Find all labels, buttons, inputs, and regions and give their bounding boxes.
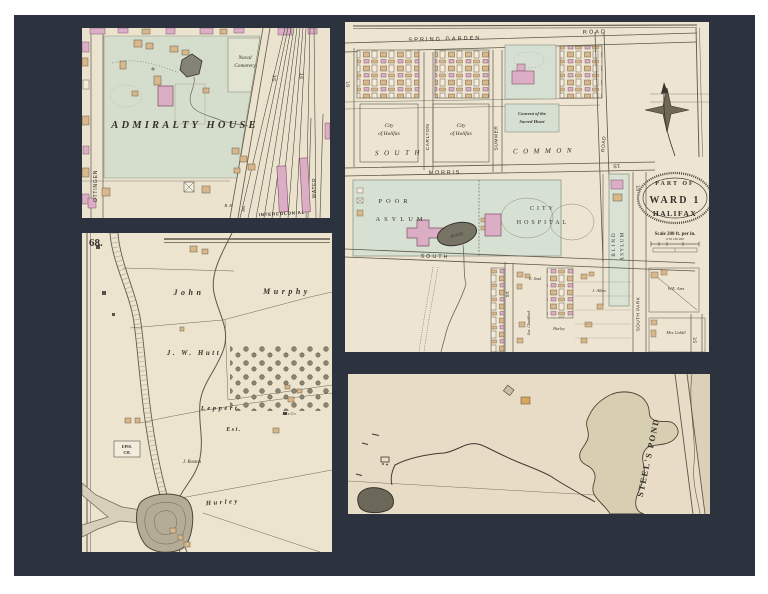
- convent-label-1: Convent of the: [518, 111, 546, 116]
- naval-cemetery-label-2: Cemetery: [234, 63, 256, 69]
- st-street-label-2: ST.: [298, 72, 305, 80]
- owner-j-boston: J. Boston: [183, 460, 202, 465]
- owner-chaddock: Jas. Chaddock: [526, 311, 531, 336]
- map-fragment-admiralty-house[interactable]: ADMIRALTY HOUSE Naval Cemetery OTTINGEN …: [82, 28, 330, 218]
- blind-asylum-label: ASYLUM: [621, 231, 626, 261]
- owner-jw-hutt: J. W. Hutt: [166, 349, 221, 357]
- poor-asylum-label: ASYLUM: [376, 216, 427, 223]
- st-corner-label: ST.: [693, 337, 698, 344]
- st-blind-label: ST.: [636, 185, 641, 192]
- city-of-halifax-b1: City: [457, 123, 467, 129]
- city-of-halifax-a1: City: [385, 123, 395, 129]
- morris-st-label: ST.: [613, 164, 621, 170]
- road-top-label: ROAD: [583, 29, 607, 36]
- convent-label-2: Sacred Heart: [519, 119, 545, 124]
- map-fragment-ward1-halifax[interactable]: SPRING GARDEN ROAD ST. CARLTON SUMMER RO…: [345, 22, 709, 352]
- owner-j-allen: J. Allen: [592, 288, 606, 293]
- summer-label: SUMMER: [494, 126, 500, 151]
- carlton-label: CARLTON: [425, 124, 431, 151]
- map-fragment-murphy-farms[interactable]: 68. John Murphy J. W. Hutt Leppert Est. …: [82, 233, 332, 552]
- admiralty-title: ADMIRALTY HOUSE: [110, 120, 258, 131]
- murphy-map-drawing: 68. John Murphy J. W. Hutt Leppert Est. …: [82, 233, 332, 552]
- morris-label: MORRIS: [429, 170, 461, 177]
- gottingen-street-label: OTTINGEN: [93, 170, 99, 202]
- owner-john: John: [173, 288, 205, 297]
- steels-pond-map-drawing: STEEL'S POND: [348, 374, 710, 514]
- cartouche-halifax: HALIFAX: [653, 209, 697, 218]
- blind-label: BLIND: [612, 231, 617, 256]
- hospital-label: HOSPITAL: [517, 220, 570, 226]
- map-fragment-steels-pond[interactable]: STEEL'S POND: [348, 374, 710, 514]
- owner-we-artz: W.E. Artz: [668, 286, 685, 291]
- owner-mrs-co: Mrs Co: [281, 411, 296, 416]
- cartouche-part-of: PART OF: [655, 181, 694, 187]
- south-street-label: SOUTH: [421, 253, 450, 260]
- owner-murphy: Murphy: [262, 287, 311, 296]
- city-of-halifax-b2: of Halifax: [450, 130, 472, 137]
- owner-hurley: Hurley: [552, 326, 565, 331]
- st-mid-label: ST.: [505, 291, 510, 298]
- city-of-halifax-a2: of Halifax: [378, 130, 400, 137]
- epis-church-label-2: CH.: [123, 450, 130, 455]
- poor-label: POOR: [378, 198, 411, 205]
- cartouche-ward: WARD 1: [649, 195, 700, 206]
- lockman-street-label: AN: [241, 206, 246, 212]
- water-street-label: WATER: [312, 178, 318, 199]
- owner-leppert-est: Est.: [225, 427, 242, 433]
- owner-e-saul: E. Saul: [528, 276, 542, 281]
- owner-mrs-cahill: Mrs Cahill: [665, 330, 686, 335]
- naval-cemetery-label-1: Naval: [237, 55, 252, 61]
- st-street-label-1: ST.: [271, 74, 278, 82]
- city-label: CITY: [530, 206, 556, 212]
- epis-church-label-1: EPIS.: [122, 444, 132, 449]
- ward1-map-drawing: SPRING GARDEN ROAD ST. CARLTON SUMMER RO…: [345, 22, 709, 352]
- bh-label: B. H.: [224, 203, 233, 208]
- st-left-label: ST.: [346, 81, 352, 88]
- admiralty-map-drawing: ADMIRALTY HOUSE Naval Cemetery OTTINGEN …: [82, 28, 330, 218]
- south-park-label: SOUTH PARK: [636, 296, 641, 331]
- page-number: 68.: [89, 237, 103, 249]
- south-common-label-2: COMMON: [513, 146, 577, 155]
- south-common-label-1: SOUTH: [375, 149, 425, 158]
- road-right-label: ROAD: [600, 136, 607, 153]
- owner-leppert: Leppert: [200, 405, 239, 412]
- cartouche-ticks: 0 50 100 200: [666, 237, 684, 241]
